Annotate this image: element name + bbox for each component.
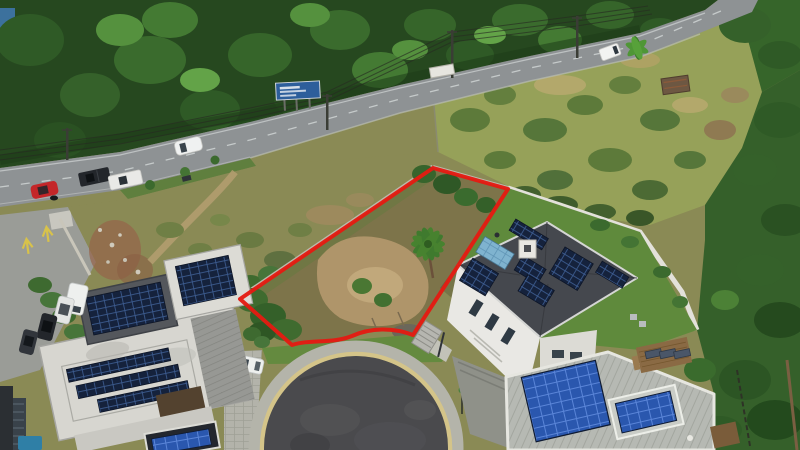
field-shrub	[640, 109, 680, 131]
tree-blob	[180, 68, 220, 92]
lot-small-tree	[352, 278, 372, 294]
wall-tree	[433, 174, 461, 194]
field-shrub	[674, 151, 706, 169]
rock	[136, 270, 141, 275]
tree-blob	[711, 290, 739, 310]
lawn-bush	[621, 236, 639, 248]
asphalt-mottle	[300, 404, 360, 436]
median-tree	[145, 180, 155, 190]
dog	[50, 196, 58, 201]
tree-blob	[719, 360, 771, 400]
aerial-photo-canvas	[0, 0, 800, 450]
tree-blob	[586, 1, 634, 29]
roof-vent	[687, 435, 693, 441]
rock	[106, 260, 110, 264]
tree-blob	[736, 254, 784, 286]
corner-bush	[254, 336, 270, 348]
grass-tuft	[156, 222, 184, 238]
truck-cab-glass	[85, 173, 94, 182]
tree-blob	[228, 33, 292, 77]
hedge	[28, 277, 52, 293]
field-shrub	[484, 151, 516, 169]
lawn-bush	[590, 219, 610, 231]
rock	[118, 233, 122, 237]
ac-unit	[639, 321, 646, 327]
pool	[18, 436, 42, 450]
rock	[110, 243, 115, 248]
field-shrub	[632, 180, 668, 200]
ac-unit	[630, 314, 637, 320]
palm-crown	[424, 240, 432, 248]
bottom-fence	[0, 386, 13, 450]
lawn-bush	[672, 296, 688, 308]
dry-grass-patch	[672, 97, 708, 113]
asphalt-mottle	[404, 400, 436, 420]
rock	[98, 228, 102, 232]
utility-pole	[576, 16, 579, 58]
field-shrub	[450, 108, 490, 132]
chimney-cap	[524, 245, 531, 252]
tree-blob	[733, 154, 777, 186]
field-shrub	[537, 170, 573, 190]
dirt-patch	[721, 87, 749, 103]
field-shrub	[567, 95, 603, 115]
tree-blob	[60, 73, 120, 117]
utility-pole	[66, 128, 69, 160]
lawn-bush	[653, 266, 671, 278]
median-tree	[211, 156, 220, 165]
grass-tuft	[210, 214, 230, 226]
lot-small-tree	[374, 293, 392, 307]
rock	[123, 258, 127, 262]
field-shed	[661, 75, 690, 95]
tree-blob	[290, 3, 330, 27]
tree-blob	[758, 41, 800, 69]
field-shrub	[588, 148, 632, 172]
window	[552, 350, 564, 358]
dirt-patch	[704, 120, 736, 140]
aerial-photograph	[0, 0, 800, 450]
tree-blob	[142, 2, 198, 38]
field-shrub	[626, 210, 654, 226]
utility-pole	[326, 94, 329, 130]
lot-dirt-patch	[346, 193, 374, 207]
tree-blob	[404, 9, 456, 41]
flue-pipe	[495, 233, 500, 238]
tree-blob	[96, 14, 144, 46]
field-shrub	[609, 76, 641, 94]
field-shrub	[523, 118, 567, 142]
wall-tree	[454, 188, 478, 206]
truck-cab-glass	[118, 176, 127, 185]
lot-dirt-patch	[306, 205, 354, 225]
grass-tuft	[288, 223, 312, 237]
